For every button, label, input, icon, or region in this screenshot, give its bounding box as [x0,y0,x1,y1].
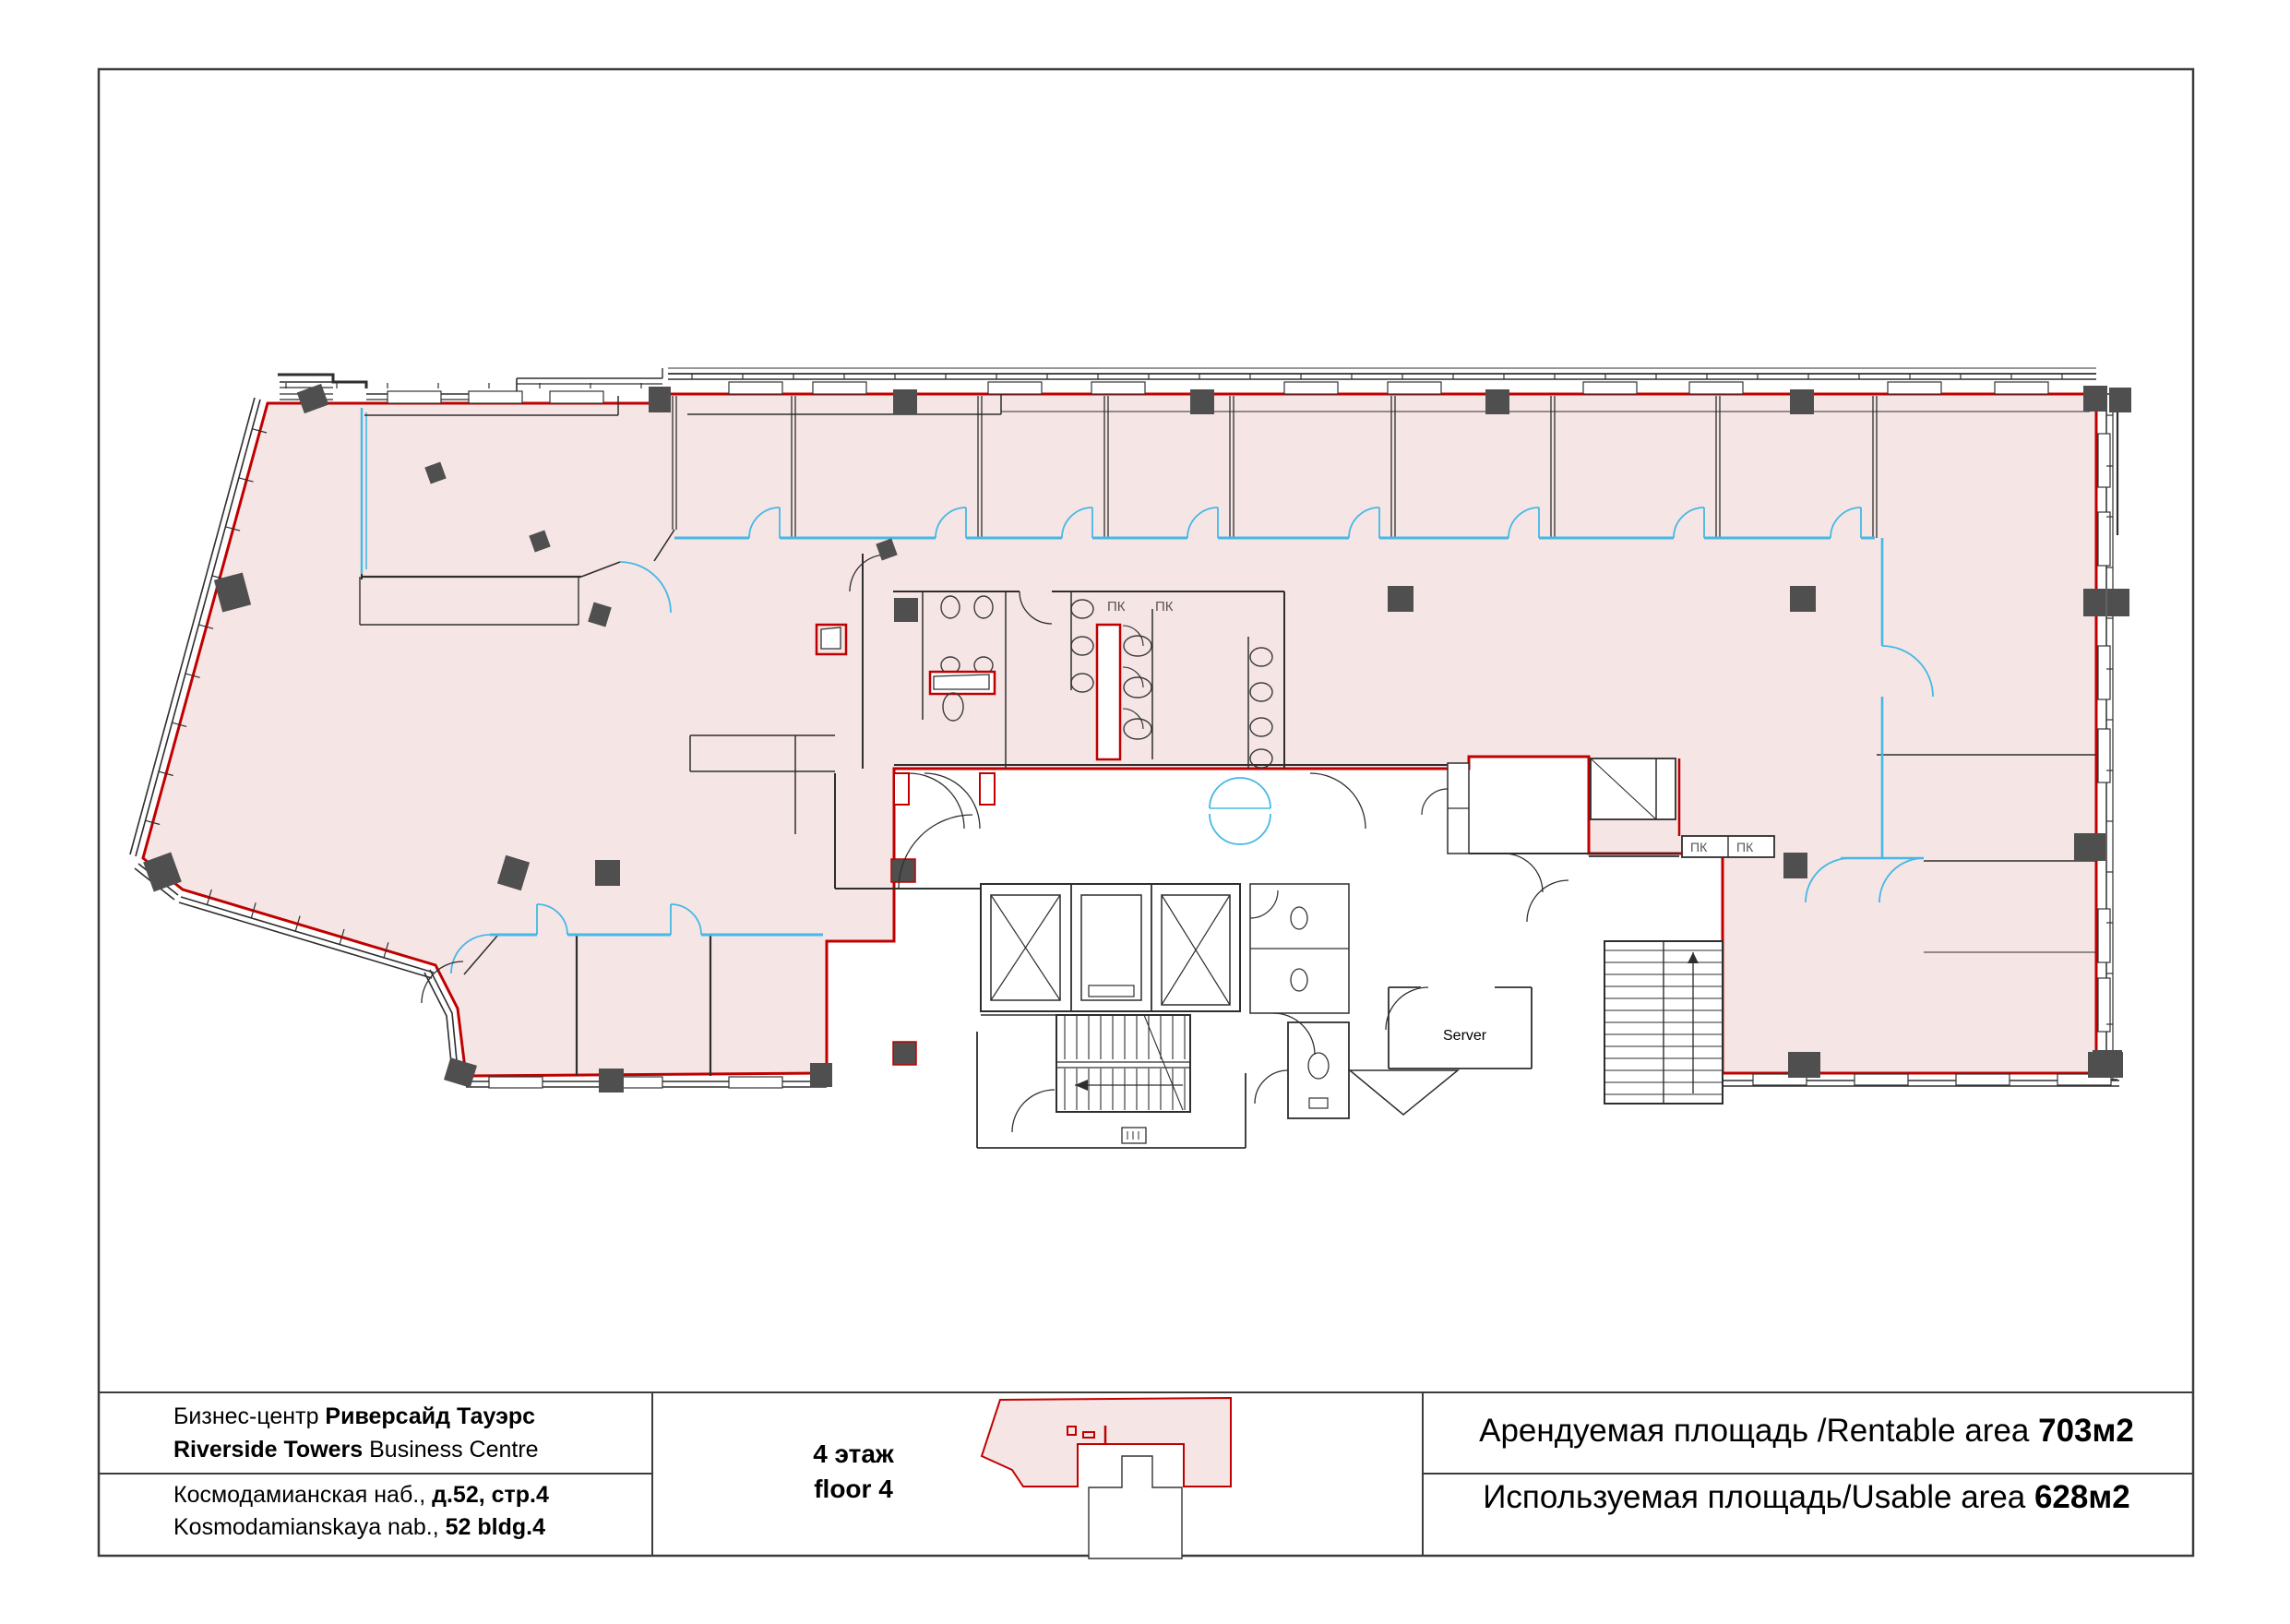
svg-text:ПК: ПК [1107,599,1126,615]
svg-text:ПК: ПК [1736,840,1754,854]
svg-text:Server: Server [1443,1028,1487,1044]
svg-text:Бизнес-центр Риверсайд Тауэрс: Бизнес-центр Риверсайд Тауэрс [173,1403,535,1429]
svg-text:Kosmodamianskaya nab., 52 bld: Kosmodamianskaya nab., 52 bldg.4 [173,1514,545,1540]
svg-text:Космодамианская наб., д.52, с: Космодамианская наб., д.52, стр.4 [173,1482,549,1508]
svg-text:ПК: ПК [1690,840,1708,854]
svg-text:Используемая площадь/Usable ar: Используемая площадь/Usable area 628м2 [1483,1479,2129,1515]
svg-text:floor 4: floor 4 [814,1475,893,1503]
svg-text:Riverside Towers Business Cent: Riverside Towers Business Centre [173,1437,539,1463]
svg-text:ПК: ПК [1155,599,1174,615]
svg-text:4 этаж: 4 этаж [813,1439,895,1468]
svg-text:Арендуемая площадь /Rentable a: Арендуемая площадь /Rentable area 703м2 [1479,1413,2134,1449]
